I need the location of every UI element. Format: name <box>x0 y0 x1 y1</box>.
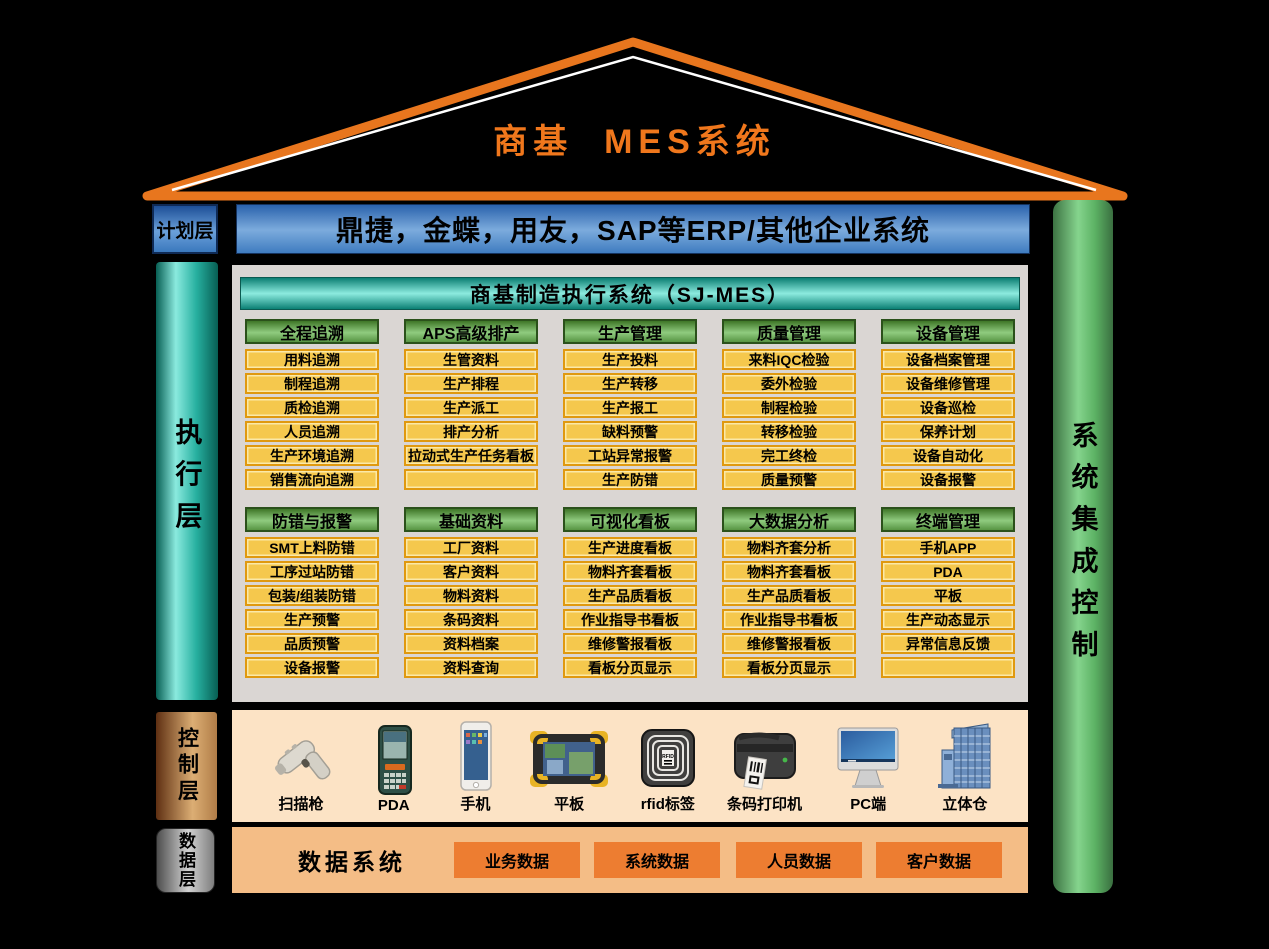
module-item: 生产转移 <box>563 373 697 394</box>
module-item: 生产预警 <box>245 609 379 630</box>
module-column: 防错与报警SMT上料防错工序过站防错包装/组装防错生产预警品质预警设备报警 <box>245 507 379 681</box>
module-item: 平板 <box>881 585 1015 606</box>
pc-monitor-icon <box>828 720 908 792</box>
module-item: 资料查询 <box>404 657 538 678</box>
module-item: 排产分析 <box>404 421 538 442</box>
module-item: 来料IQC检验 <box>722 349 856 370</box>
module-item: 工厂资料 <box>404 537 538 558</box>
module-item: 物料资料 <box>404 585 538 606</box>
roof-outline <box>0 0 1269 212</box>
module-item: 制程追溯 <box>245 373 379 394</box>
device-tablet: 平板 <box>527 720 611 814</box>
module-item: 条码资料 <box>404 609 538 630</box>
module-item: 手机APP <box>881 537 1015 558</box>
module-item: 设备报警 <box>245 657 379 678</box>
mes-panel: 商基制造执行系统（SJ-MES） 全程追溯用料追溯制程追溯质检追溯人员追溯生产环… <box>232 265 1028 702</box>
module-item: 完工终检 <box>722 445 856 466</box>
module-item: 质检追溯 <box>245 397 379 418</box>
module-item: 生产品质看板 <box>563 585 697 606</box>
module-item: 物料齐套分析 <box>722 537 856 558</box>
module-header: 终端管理 <box>881 507 1015 532</box>
module-item: 物料齐套看板 <box>563 561 697 582</box>
module-item: 保养计划 <box>881 421 1015 442</box>
device-label: 平板 <box>554 793 584 814</box>
pda-icon <box>364 724 424 796</box>
module-column: 大数据分析物料齐套分析物料齐套看板生产品质看板作业指导书看板维修警报看板看板分页… <box>722 507 856 681</box>
tablet-icon <box>527 720 611 792</box>
data-layer-label: 数据层 <box>156 828 215 893</box>
module-item <box>404 469 538 490</box>
module-item: 生产排程 <box>404 373 538 394</box>
module-item: 品质预警 <box>245 633 379 654</box>
module-item: 异常信息反馈 <box>881 633 1015 654</box>
mes-panel-title: 商基制造执行系统（SJ-MES） <box>240 277 1020 310</box>
module-item: 生产防错 <box>563 469 697 490</box>
device-label: 手机 <box>460 793 490 814</box>
rfid-tag-icon: RFID <box>635 720 701 792</box>
module-item: 生产报工 <box>563 397 697 418</box>
execution-layer-label: 执行层 <box>156 262 218 700</box>
control-devices-bar: 扫描枪 PDA <box>232 710 1028 822</box>
control-layer-label: 控制层 <box>156 712 217 820</box>
module-item: 工序过站防错 <box>245 561 379 582</box>
module-item: 工站异常报警 <box>563 445 697 466</box>
data-box-system: 系统数据 <box>594 842 720 878</box>
module-item: 制程检验 <box>722 397 856 418</box>
module-column: 全程追溯用料追溯制程追溯质检追溯人员追溯生产环境追溯销售流向追溯 <box>245 319 379 493</box>
module-header: 防错与报警 <box>245 507 379 532</box>
module-item: 维修警报看板 <box>722 633 856 654</box>
execution-layer-text: 执行层 <box>168 418 207 544</box>
diagram-title: 商基 MES系统 <box>0 114 1269 163</box>
module-item: 转移检验 <box>722 421 856 442</box>
module-item: 生管资料 <box>404 349 538 370</box>
module-header: 质量管理 <box>722 319 856 344</box>
mes-architecture-diagram: 商基 MES系统 计划层 鼎捷，金蝶，用友，SAP等ERP/其他企业系统 执行层… <box>0 0 1269 949</box>
module-item: 生产动态显示 <box>881 609 1015 630</box>
module-column: 生产管理生产投料生产转移生产报工缺料预警工站异常报警生产防错 <box>563 319 697 493</box>
module-item: 生产派工 <box>404 397 538 418</box>
module-item: 设备维修管理 <box>881 373 1015 394</box>
device-label: PDA <box>378 797 410 814</box>
module-item: 设备自动化 <box>881 445 1015 466</box>
module-item: 设备报警 <box>881 469 1015 490</box>
module-column: 终端管理手机APPPDA平板生产动态显示异常信息反馈 <box>881 507 1015 681</box>
module-column: 质量管理来料IQC检验委外检验制程检验转移检验完工终检质量预警 <box>722 319 856 493</box>
module-item <box>881 657 1015 678</box>
device-label: 条码打印机 <box>727 793 802 814</box>
module-column: APS高级排产生管资料生产排程生产派工排产分析拉动式生产任务看板 <box>404 319 538 493</box>
data-system-title: 数据系统 <box>298 843 406 877</box>
module-item: 资料档案 <box>404 633 538 654</box>
module-block-bottom: 防错与报警SMT上料防错工序过站防错包装/组装防错生产预警品质预警设备报警基础资… <box>232 507 1028 681</box>
module-header: 设备管理 <box>881 319 1015 344</box>
module-item: 质量预警 <box>722 469 856 490</box>
smartphone-icon <box>447 720 503 792</box>
svg-text:RFID: RFID <box>662 754 674 760</box>
device-label: 扫描枪 <box>278 793 323 814</box>
system-integration-bar: 系统集成控制 <box>1053 200 1113 893</box>
module-item: 设备档案管理 <box>881 349 1015 370</box>
module-item: 生产品质看板 <box>722 585 856 606</box>
module-item: 包装/组装防错 <box>245 585 379 606</box>
device-phone: 手机 <box>447 720 503 814</box>
module-item: PDA <box>881 561 1015 582</box>
module-item: 看板分页显示 <box>722 657 856 678</box>
module-column: 基础资料工厂资料客户资料物料资料条码资料资料档案资料查询 <box>404 507 538 681</box>
module-item: SMT上料防错 <box>245 537 379 558</box>
device-pc: PC端 <box>828 720 908 814</box>
module-column: 设备管理设备档案管理设备维修管理设备巡检保养计划设备自动化设备报警 <box>881 319 1015 493</box>
device-label: 立体仓 <box>942 793 987 814</box>
device-label: rfid标签 <box>641 793 695 814</box>
module-header: APS高级排产 <box>404 319 538 344</box>
erp-systems-bar: 鼎捷，金蝶，用友，SAP等ERP/其他企业系统 <box>236 204 1030 254</box>
module-item: 销售流向追溯 <box>245 469 379 490</box>
module-header: 生产管理 <box>563 319 697 344</box>
warehouse-icon <box>932 720 998 792</box>
device-scanner: 扫描枪 <box>262 720 340 814</box>
module-header: 全程追溯 <box>245 319 379 344</box>
module-item: 看板分页显示 <box>563 657 697 678</box>
device-pda: PDA <box>364 724 424 814</box>
module-item: 拉动式生产任务看板 <box>404 445 538 466</box>
barcode-scanner-icon <box>262 720 340 792</box>
module-item: 客户资料 <box>404 561 538 582</box>
module-header: 可视化看板 <box>563 507 697 532</box>
device-rfid: RFID rfid标签 <box>635 720 701 814</box>
control-layer-text: 控制层 <box>172 727 202 806</box>
module-item: 作业指导书看板 <box>722 609 856 630</box>
data-box-personnel: 人员数据 <box>736 842 862 878</box>
module-item: 作业指导书看板 <box>563 609 697 630</box>
data-box-customer: 客户数据 <box>876 842 1002 878</box>
module-item: 人员追溯 <box>245 421 379 442</box>
module-item: 物料齐套看板 <box>722 561 856 582</box>
module-item: 设备巡检 <box>881 397 1015 418</box>
device-label: PC端 <box>850 793 886 814</box>
system-integration-text: 系统集成控制 <box>1064 421 1103 672</box>
module-header: 基础资料 <box>404 507 538 532</box>
module-block-top: 全程追溯用料追溯制程追溯质检追溯人员追溯生产环境追溯销售流向追溯APS高级排产生… <box>232 319 1028 493</box>
device-printer: 条码打印机 <box>725 720 805 814</box>
module-column: 可视化看板生产进度看板物料齐套看板生产品质看板作业指导书看板维修警报看板看板分页… <box>563 507 697 681</box>
data-layer-text: 数据层 <box>173 832 198 889</box>
data-systems-bar: 数据系统 业务数据 系统数据 人员数据 客户数据 <box>232 827 1028 893</box>
module-item: 生产环境追溯 <box>245 445 379 466</box>
device-warehouse: 立体仓 <box>932 720 998 814</box>
label-printer-icon <box>725 720 805 792</box>
module-item: 用料追溯 <box>245 349 379 370</box>
module-header: 大数据分析 <box>722 507 856 532</box>
module-item: 维修警报看板 <box>563 633 697 654</box>
module-item: 生产投料 <box>563 349 697 370</box>
module-item: 委外检验 <box>722 373 856 394</box>
plan-layer-label: 计划层 <box>152 204 218 254</box>
module-item: 生产进度看板 <box>563 537 697 558</box>
data-box-business: 业务数据 <box>454 842 580 878</box>
module-item: 缺料预警 <box>563 421 697 442</box>
